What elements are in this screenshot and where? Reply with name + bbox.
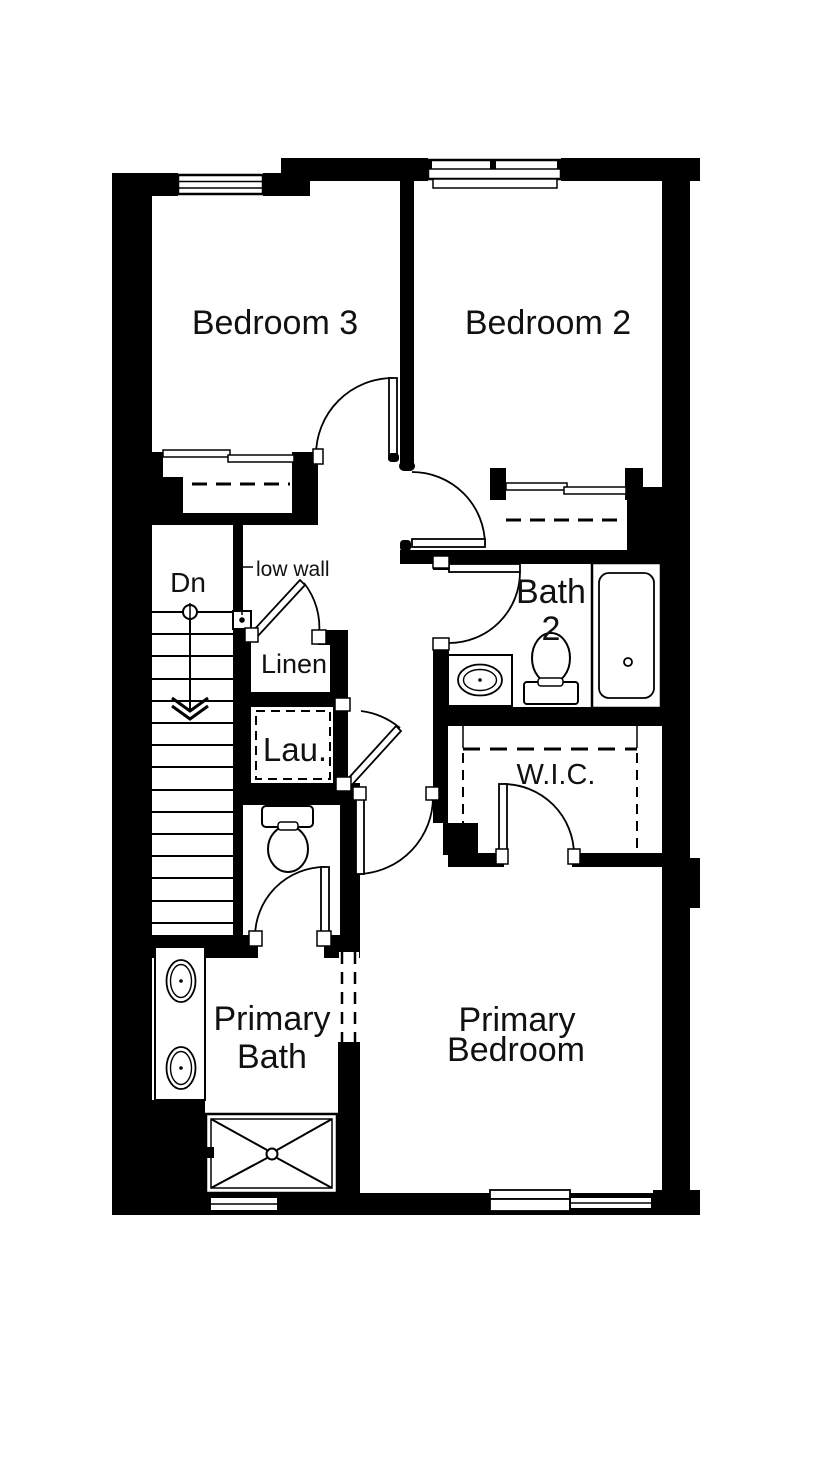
bedroom2-window bbox=[428, 160, 561, 188]
primary-bedroom-window-1 bbox=[490, 1190, 570, 1211]
label-primary-bath-line1: Primary bbox=[213, 1000, 330, 1038]
primary-bedroom-window-2 bbox=[570, 1197, 652, 1209]
primary-sink-1 bbox=[167, 960, 196, 1002]
label-bedroom-3: Bedroom 3 bbox=[192, 304, 358, 342]
primary-bath-vanity bbox=[155, 947, 205, 1100]
label-low-wall: low wall bbox=[256, 558, 330, 581]
label-linen: Linen bbox=[261, 649, 327, 679]
bath2-vanity-sink bbox=[448, 655, 512, 706]
shower-window bbox=[210, 1197, 278, 1211]
tub-drain bbox=[624, 658, 632, 666]
primary-shower bbox=[193, 1114, 337, 1193]
floor-plan-drawing: Bedroom 3 Bedroom 2 Bath 2 Linen Lau. W.… bbox=[0, 0, 840, 1466]
bedroom3-window bbox=[178, 175, 263, 194]
label-primary-bath-line2: Bath bbox=[237, 1038, 307, 1076]
label-primary-bedroom-line2: Bedroom bbox=[447, 1031, 585, 1069]
label-bedroom-2: Bedroom 2 bbox=[465, 304, 631, 342]
label-bath2-line1: Bath bbox=[516, 573, 586, 611]
label-wic: W.I.C. bbox=[517, 759, 596, 791]
primary-sink-2 bbox=[167, 1047, 196, 1089]
floor-plan-page: Bedroom 3 Bedroom 2 Bath 2 Linen Lau. W.… bbox=[0, 0, 840, 1466]
label-bath2-line2: 2 bbox=[542, 610, 561, 648]
primary-bath-cased-opening bbox=[339, 952, 359, 1042]
label-laundry: Lau. bbox=[263, 731, 327, 768]
label-stairs-down: Dn bbox=[170, 567, 206, 598]
bath2-tub bbox=[592, 563, 661, 708]
